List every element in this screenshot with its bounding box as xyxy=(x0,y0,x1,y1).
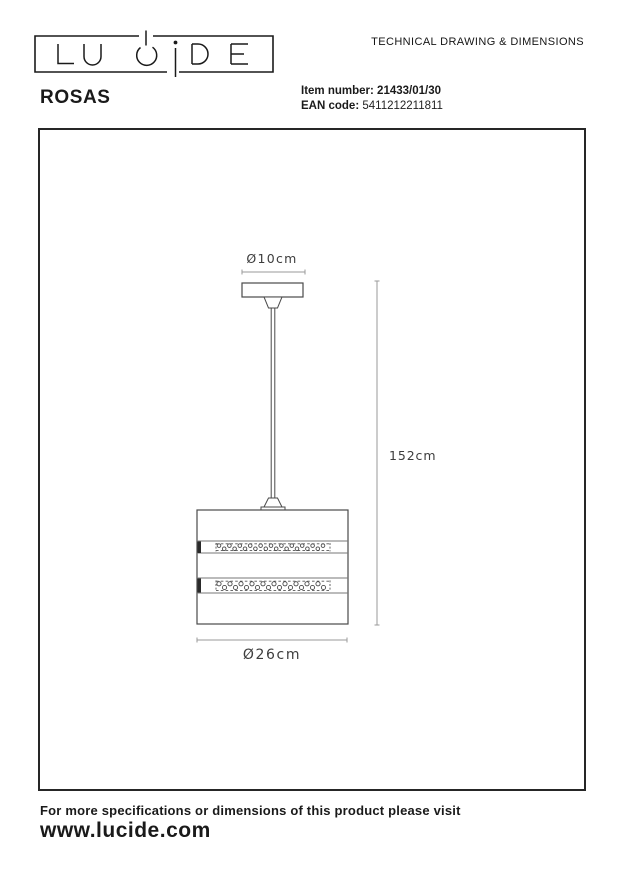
suspension-cord xyxy=(271,308,275,498)
item-number-value: 21433/01/30 xyxy=(377,85,441,97)
ceiling-canopy xyxy=(242,283,303,297)
spec-sheet-page: LUCIDE TECHNICAL DRAWING & DIMENSIONS RO… xyxy=(0,0,620,877)
logo-letter-c xyxy=(137,47,157,65)
shade-dimension-line xyxy=(197,638,347,643)
cord-grip xyxy=(264,297,282,308)
footer-note: For more specifications or dimensions of… xyxy=(40,803,461,818)
lucide-logo: LUCIDE xyxy=(34,29,274,79)
logo-letter-u xyxy=(84,44,101,65)
document-title: TECHNICAL DRAWING & DIMENSIONS xyxy=(371,36,584,48)
technical-drawing: Ø10cm xyxy=(40,130,584,789)
drawing-frame: Ø10cm xyxy=(38,128,586,791)
product-codes: Item number: 21433/01/30 EAN code: 54112… xyxy=(301,84,443,114)
ean-code-value: 5411212211811 xyxy=(362,100,443,112)
website-url: www.lucide.com xyxy=(40,819,211,843)
logo-letter-l xyxy=(58,44,74,64)
canopy-diameter-label: Ø10cm xyxy=(246,251,297,266)
logo-letter-i-dot xyxy=(174,41,178,45)
ean-code-row: EAN code: 5411212211811 xyxy=(301,99,443,114)
height-label: 152cm xyxy=(389,448,436,463)
logo-letter-e xyxy=(231,44,248,64)
item-number-row: Item number: 21433/01/30 xyxy=(301,84,443,99)
ean-code-label: EAN code: xyxy=(301,100,359,112)
height-dimension-line xyxy=(375,281,380,625)
product-name: ROSAS xyxy=(40,87,111,109)
logo-frame-right xyxy=(153,36,273,72)
canopy-dimension-line xyxy=(242,270,305,275)
lamp-shade xyxy=(197,510,348,624)
shade-diameter-label: Ø26cm xyxy=(243,647,301,663)
item-number-label: Item number: xyxy=(301,85,374,97)
lamp-socket xyxy=(264,498,282,507)
logo-letter-d xyxy=(192,44,208,64)
